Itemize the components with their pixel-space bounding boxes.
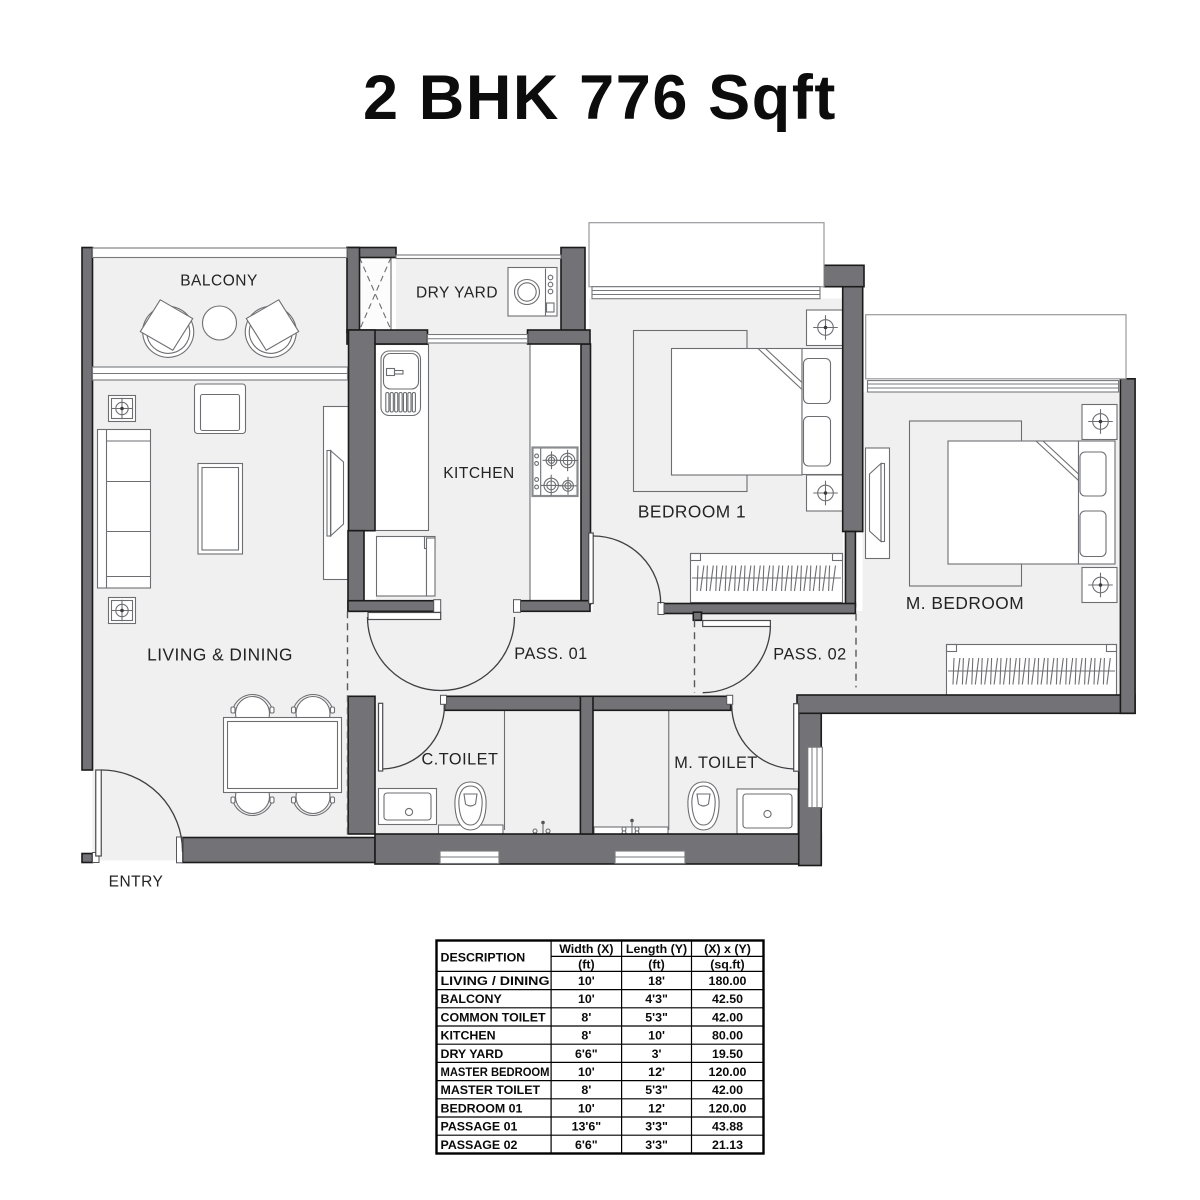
svg-text:3'3": 3'3" xyxy=(645,1138,668,1152)
svg-text:10': 10' xyxy=(648,1029,665,1043)
svg-text:(sq.ft): (sq.ft) xyxy=(710,958,744,972)
svg-text:BEDROOM 1: BEDROOM 1 xyxy=(638,502,746,522)
svg-text:4'3": 4'3" xyxy=(645,992,668,1006)
svg-text:8': 8' xyxy=(581,1010,591,1024)
svg-text:6'6": 6'6" xyxy=(575,1047,598,1061)
svg-text:120.00: 120.00 xyxy=(709,1065,747,1079)
svg-text:COMMON TOILET: COMMON TOILET xyxy=(441,1010,547,1024)
svg-text:M. TOILET: M. TOILET xyxy=(674,754,758,772)
svg-text:180.00: 180.00 xyxy=(709,974,747,988)
svg-text:(X) x (Y): (X) x (Y) xyxy=(704,942,751,956)
svg-text:(ft): (ft) xyxy=(648,958,665,972)
svg-text:8': 8' xyxy=(581,1083,591,1097)
svg-text:3': 3' xyxy=(652,1047,662,1061)
svg-text:DESCRIPTION: DESCRIPTION xyxy=(441,951,526,965)
svg-text:LIVING / DINING: LIVING / DINING xyxy=(441,974,550,988)
svg-text:42.50: 42.50 xyxy=(712,992,743,1006)
svg-text:42.00: 42.00 xyxy=(712,1083,743,1097)
svg-text:10': 10' xyxy=(578,1065,595,1079)
svg-text:MASTER TOILET: MASTER TOILET xyxy=(441,1083,541,1097)
svg-text:PASSAGE 01: PASSAGE 01 xyxy=(441,1120,518,1134)
svg-text:12': 12' xyxy=(648,1065,665,1079)
svg-text:21.13: 21.13 xyxy=(712,1138,743,1152)
svg-text:3'3": 3'3" xyxy=(645,1120,668,1134)
svg-text:80.00: 80.00 xyxy=(712,1029,743,1043)
svg-text:ENTRY: ENTRY xyxy=(109,874,164,891)
svg-text:M. BEDROOM: M. BEDROOM xyxy=(906,593,1024,613)
svg-text:BALCONY: BALCONY xyxy=(180,273,258,290)
svg-text:PASSAGE 02: PASSAGE 02 xyxy=(441,1138,518,1152)
svg-text:5'3": 5'3" xyxy=(645,1083,668,1097)
svg-text:LIVING & DINING: LIVING & DINING xyxy=(147,645,293,665)
svg-text:KITCHEN: KITCHEN xyxy=(443,465,515,482)
svg-text:10': 10' xyxy=(578,974,595,988)
svg-text:6'6": 6'6" xyxy=(575,1138,598,1152)
svg-text:DRY YARD: DRY YARD xyxy=(416,285,498,302)
svg-text:KITCHEN: KITCHEN xyxy=(441,1029,496,1043)
svg-text:BALCONY: BALCONY xyxy=(441,992,503,1006)
svg-text:43.88: 43.88 xyxy=(712,1120,743,1134)
svg-text:(ft): (ft) xyxy=(578,958,595,972)
svg-text:Length (Y): Length (Y) xyxy=(626,942,687,956)
svg-text:42.00: 42.00 xyxy=(712,1010,743,1024)
svg-text:DRY YARD: DRY YARD xyxy=(441,1047,504,1061)
svg-text:120.00: 120.00 xyxy=(709,1101,747,1115)
svg-text:12': 12' xyxy=(648,1101,665,1115)
svg-text:19.50: 19.50 xyxy=(712,1047,743,1061)
svg-text:5'3": 5'3" xyxy=(645,1010,668,1024)
svg-text:8': 8' xyxy=(581,1029,591,1043)
svg-text:C.TOILET: C.TOILET xyxy=(422,751,499,769)
svg-text:18': 18' xyxy=(648,974,665,988)
svg-text:10': 10' xyxy=(578,1101,595,1115)
svg-text:13'6": 13'6" xyxy=(572,1120,602,1134)
svg-text:MASTER BEDROOM: MASTER BEDROOM xyxy=(441,1065,550,1079)
svg-text:10': 10' xyxy=(578,992,595,1006)
svg-text:2 BHK 776 Sqft: 2 BHK 776 Sqft xyxy=(363,63,837,133)
svg-text:Width (X): Width (X) xyxy=(559,942,613,956)
svg-text:BEDROOM 01: BEDROOM 01 xyxy=(441,1101,523,1115)
svg-text:PASS. 01: PASS. 01 xyxy=(514,645,587,663)
svg-text:PASS. 02: PASS. 02 xyxy=(773,646,846,664)
